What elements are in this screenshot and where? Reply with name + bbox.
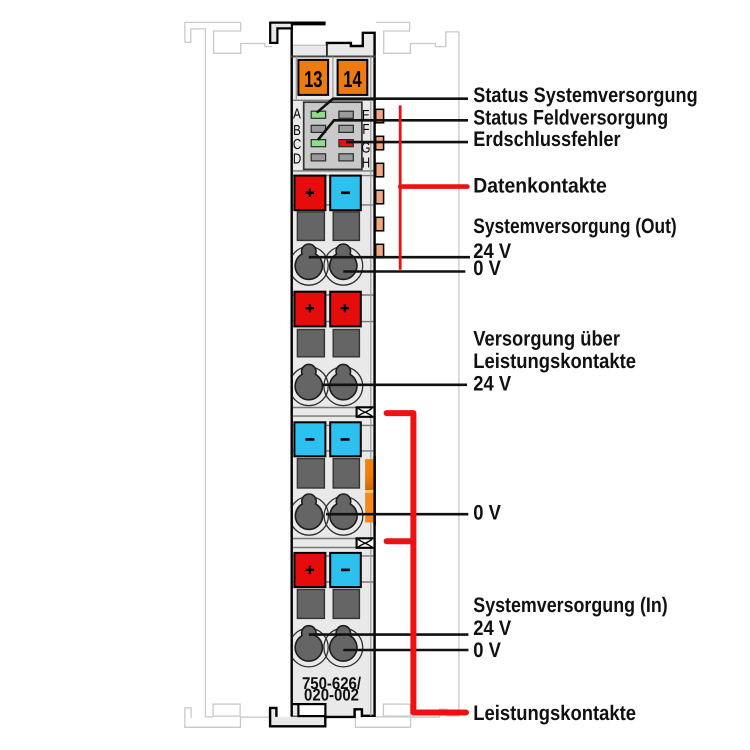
- svg-text:0 V: 0 V: [473, 502, 501, 525]
- svg-text:24 V: 24 V: [473, 617, 511, 640]
- svg-text:H: H: [362, 156, 370, 172]
- svg-text:13: 13: [304, 66, 322, 92]
- svg-text:0 V: 0 V: [473, 639, 501, 662]
- svg-text:Datenkontakte: Datenkontakte: [473, 175, 606, 198]
- svg-text:Leistungskontakte: Leistungskontakte: [473, 350, 636, 373]
- svg-text:24 V: 24 V: [473, 373, 511, 396]
- svg-text:Erdschlussfehler: Erdschlussfehler: [473, 128, 620, 151]
- svg-text:020-002: 020-002: [304, 686, 359, 705]
- svg-text:D: D: [293, 152, 301, 168]
- svg-text:F: F: [362, 122, 369, 138]
- svg-text:0 V: 0 V: [473, 257, 501, 280]
- svg-text:Status Systemversorgung: Status Systemversorgung: [473, 84, 697, 107]
- svg-text:14: 14: [343, 66, 362, 92]
- svg-text:Leistungskontakte: Leistungskontakte: [473, 702, 636, 725]
- svg-text:A: A: [293, 107, 301, 123]
- svg-text:Status Feldversorgung: Status Feldversorgung: [473, 107, 668, 130]
- svg-text:C: C: [293, 137, 301, 153]
- svg-text:Systemversorgung (Out): Systemversorgung (Out): [473, 215, 676, 238]
- svg-text:Systemversorgung (In): Systemversorgung (In): [473, 594, 667, 617]
- svg-text:Versorgung über: Versorgung über: [473, 328, 620, 351]
